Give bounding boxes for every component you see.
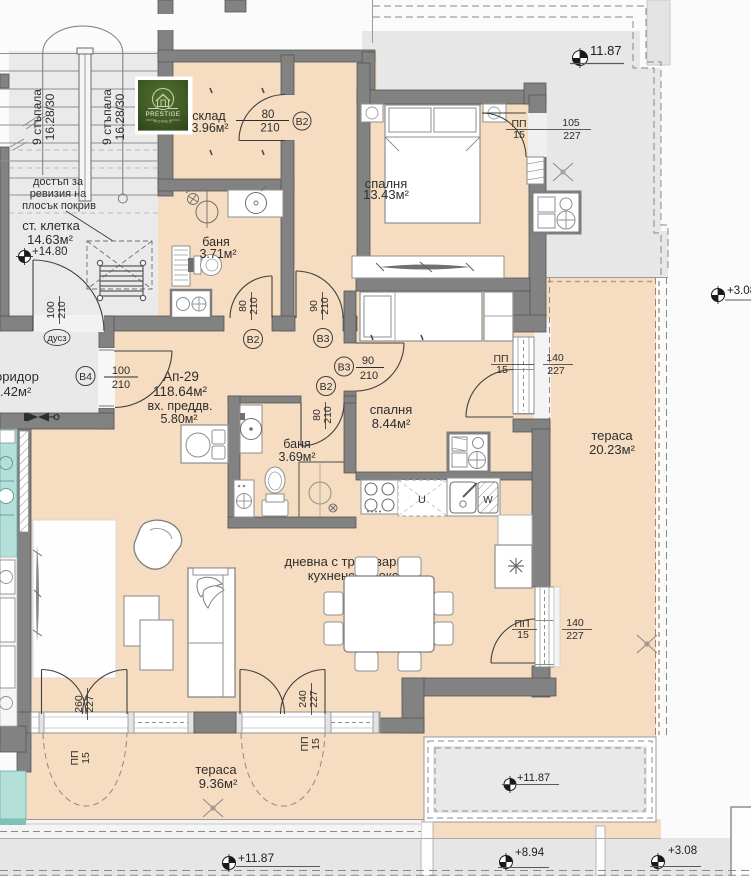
svg-text:227: 227 [547,365,565,377]
svg-text:PRESTIGE: PRESTIGE [146,111,181,118]
svg-text:210: 210 [360,370,378,382]
svg-text:90: 90 [362,355,374,367]
svg-text:В2: В2 [296,116,309,128]
svg-text:16.28/30: 16.28/30 [113,93,127,140]
svg-text:плосък покрив: плосък покрив [22,200,96,212]
svg-text:210: 210 [248,297,260,315]
svg-text:118.64м²: 118.64м² [153,384,208,399]
svg-text:140: 140 [546,352,564,364]
svg-text:вх. преддв.: вх. преддв. [148,399,213,413]
svg-text:достъп за: достъп за [33,176,84,188]
svg-text:3.96м²: 3.96м² [191,121,228,135]
svg-text:+3.08: +3.08 [668,845,697,857]
svg-text:9 стъпала: 9 стъпала [100,89,114,145]
svg-text:210: 210 [112,379,130,391]
svg-text:16.28/30: 16.28/30 [43,93,57,140]
svg-text:15: 15 [310,738,322,750]
svg-text:HOMES: HOMES [154,119,173,124]
svg-text:+14.80: +14.80 [32,246,68,258]
svg-text:5.80м²: 5.80м² [160,412,197,426]
svg-text:210: 210 [260,123,279,135]
svg-text:W: W [483,495,493,506]
svg-text:80: 80 [262,109,275,121]
svg-text:+3.08: +3.08 [727,285,751,297]
svg-text:210: 210 [322,406,334,424]
svg-text:8.42м²: 8.42м² [0,384,32,399]
svg-text:15: 15 [513,129,525,141]
svg-text:В3: В3 [317,333,330,345]
svg-text:В2: В2 [247,334,260,346]
svg-text:140: 140 [566,617,584,629]
svg-text:14.63м²: 14.63м² [27,232,73,247]
svg-text:227: 227 [563,130,581,142]
svg-text:тераса: тераса [591,428,633,443]
svg-text:15: 15 [517,629,529,641]
svg-text:тераса: тераса [195,762,237,777]
svg-text:20.23м²: 20.23м² [589,442,635,457]
svg-text:210: 210 [56,301,68,319]
svg-text:227: 227 [566,630,584,642]
svg-text:ст. клетка: ст. клетка [22,218,80,233]
svg-text:13.43м²: 13.43м² [363,187,409,202]
svg-text:9 стъпала: 9 стъпала [30,89,44,145]
svg-text:+11.87: +11.87 [517,772,550,784]
svg-text:дусз: дусз [47,333,66,344]
svg-text:8.44м²: 8.44м² [372,416,411,431]
svg-text:3.69м²: 3.69м² [278,450,315,464]
svg-text:11.87: 11.87 [590,43,622,58]
svg-text:+11.87: +11.87 [238,851,274,865]
svg-text:U: U [418,494,426,506]
svg-text:9.36м²: 9.36м² [199,776,238,791]
svg-text:В4: В4 [79,371,92,383]
svg-text:коридор: коридор [0,369,39,384]
svg-text:баня: баня [283,437,311,451]
svg-text:спалня: спалня [370,402,413,417]
svg-text:210: 210 [319,297,331,315]
svg-text:100: 100 [112,365,130,377]
svg-text:3.71м²: 3.71м² [199,247,236,261]
svg-text:В3: В3 [338,362,351,374]
svg-text:105: 105 [562,117,580,129]
svg-text:+8.94: +8.94 [515,847,545,859]
svg-text:15: 15 [80,752,92,764]
svg-text:ревизия на: ревизия на [30,188,87,200]
svg-text:227: 227 [308,690,320,708]
svg-text:В2: В2 [320,381,333,393]
